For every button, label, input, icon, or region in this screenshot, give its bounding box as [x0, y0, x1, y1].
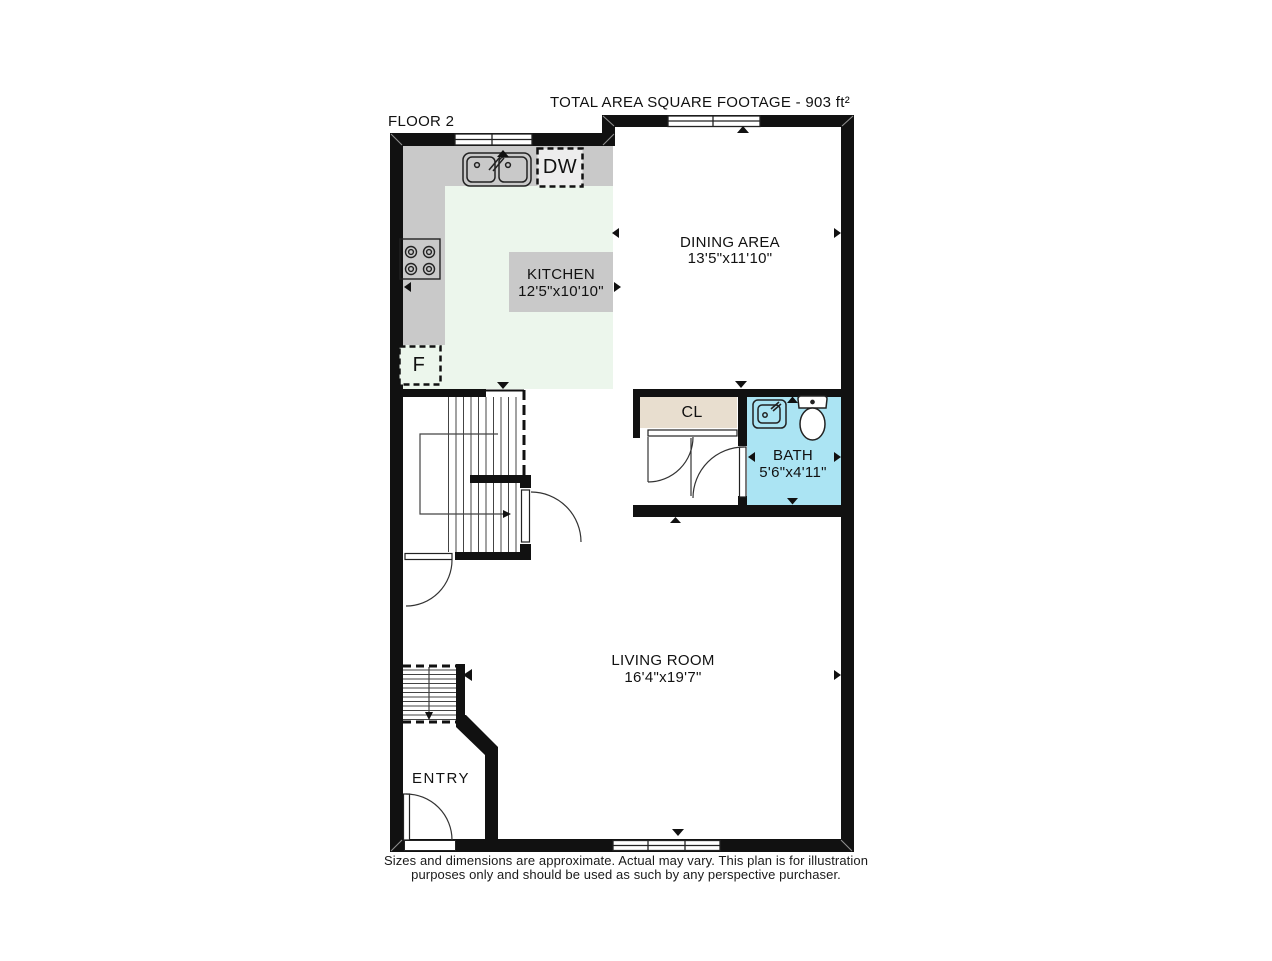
window-kitchen [455, 134, 532, 145]
door-stairwell [522, 490, 582, 542]
floorplan-drawing [0, 0, 1272, 961]
toilet-icon [798, 396, 827, 440]
dishwasher-label: DW [543, 156, 577, 179]
fridge-label: F [413, 354, 426, 377]
living-name: LIVING ROOM [611, 652, 714, 669]
living-dims: 16'4"x19'7" [624, 669, 701, 686]
arrow-living-up [670, 517, 681, 523]
arrow-dining-right [834, 228, 841, 238]
disclaimer-line2: purposes only and should be used as such… [411, 867, 841, 882]
bath-name: BATH [773, 447, 813, 464]
dining-dims: 13'5"x11'10" [688, 250, 773, 267]
closet-label: CL [681, 404, 702, 422]
walkline-arrowhead-down [425, 712, 433, 720]
closet-track [648, 430, 737, 436]
window-dining [668, 116, 760, 127]
entry-label: ENTRY [412, 770, 470, 787]
kitchen-name: KITCHEN [527, 266, 595, 283]
door-entry [404, 794, 453, 840]
entry-door-opening [405, 841, 456, 851]
arrow-living-down [672, 829, 684, 836]
kitchen-dims: 12'5"x10'10" [518, 283, 604, 300]
stairs-upper-walkline [420, 434, 503, 514]
dining-name: DINING AREA [680, 234, 780, 251]
disclaimer-line1: Sizes and dimensions are approximate. Ac… [384, 853, 868, 868]
total-area-title: TOTAL AREA SQUARE FOOTAGE - 903 ft² [550, 94, 850, 111]
stairs-upper [449, 397, 517, 552]
bath-dims: 5'6"x4'11" [759, 464, 826, 481]
window-living [613, 841, 720, 851]
floorplan-page: TOTAL AREA SQUARE FOOTAGE - 903 ft² FLOO… [0, 0, 1272, 961]
walkline-arrowhead [503, 510, 511, 518]
arrow-dining-left [612, 228, 619, 238]
door-bath [693, 447, 746, 498]
door-living-from-stairs [405, 554, 452, 607]
arrow-dining-down [735, 381, 747, 388]
arrow-living-right [834, 670, 841, 680]
arrow-kitchen-right [614, 282, 621, 292]
closet-doors [648, 437, 693, 496]
floor-label: FLOOR 2 [388, 113, 454, 130]
